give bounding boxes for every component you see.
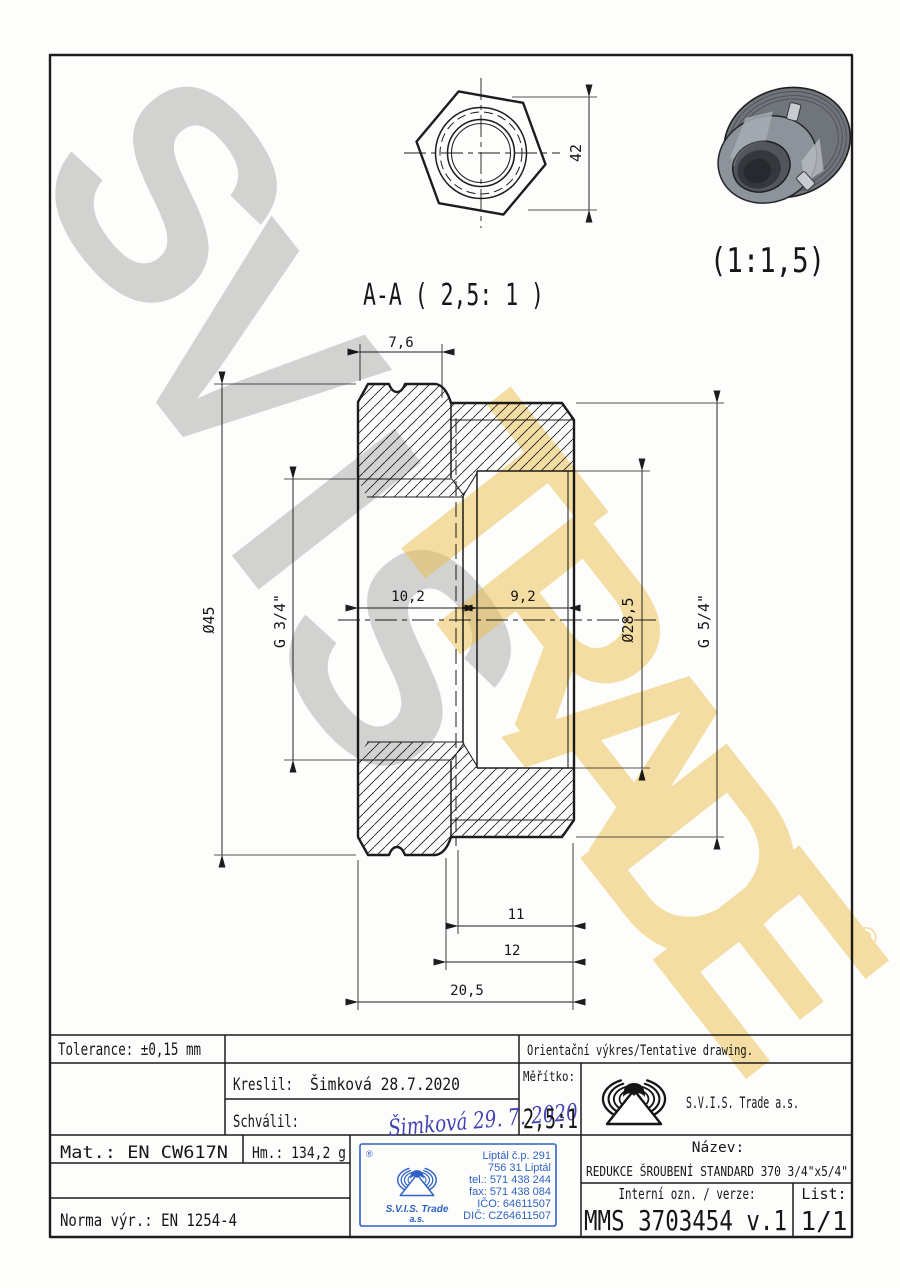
weight-value: Hm.: 134,2 g [252,1143,346,1162]
schvalil-label: Schválil: [233,1112,299,1132]
list-value: 1/1 [801,1207,848,1237]
stamp-address-1: Liptál č.p. 291 [483,1150,552,1162]
interni-label: Interní ozn. / verze: [619,1185,756,1203]
norm-value: Norma výr.: EN 1254-4 [60,1211,237,1231]
stamp-address-4: fax: 571 438 084 [469,1186,551,1198]
dim-across-flats: 42 [567,144,585,162]
stamp-logo-icon [398,1168,437,1195]
photo-scale-label: (1:1,5) [710,241,825,281]
top-view: 42 [404,78,597,228]
watermark-registered-icon: ® [855,922,877,955]
dim-len-11: 11 [508,907,525,923]
tolerance-note: Tolerance: ±0,15 mm [58,1040,201,1060]
photo-view [700,71,865,216]
dim-len-total: 20,5 [450,983,484,999]
company-stamp: ® S.V.I.S. Trade a.s. Liptál č.p. 291 75… [360,1144,556,1226]
stamp-address-2: 756 31 Liptál [488,1162,551,1174]
list-label: List: [801,1185,846,1203]
stamp-brand-suffix: a.s. [409,1214,424,1224]
kreslil-label: Kreslil: [233,1075,293,1095]
stamp-address-3: tel.: 571 438 244 [469,1174,551,1186]
drawing-sheet: 42 (1:1,5) A-A ( 2,5: 1 ) [0,0,900,1288]
meritko-value: 2,5:1 [523,1104,578,1135]
scanned-technical-drawing: 42 (1:1,5) A-A ( 2,5: 1 ) [0,0,900,1288]
meritko-label: Měřítko: [523,1070,575,1085]
dim-len-12: 12 [504,943,521,959]
interni-value: MMS 3703454 v.1 [584,1204,787,1237]
nazev-label: Název: [692,1140,744,1156]
stamp-address-6: DIČ: CZ64611507 [463,1209,551,1222]
stamp-registered-icon: ® [366,1149,373,1159]
company-logo-icon [603,1080,665,1124]
kreslil-value: Šimková 28.7.2020 [310,1073,460,1095]
nazev-value: REDUKCE ŠROUBENÍ STANDARD 370 3/4"x5/4" [586,1162,848,1180]
material-value: Mat.: EN CW617N [60,1143,228,1163]
stamp-address-5: IČO: 64611507 [477,1197,551,1210]
